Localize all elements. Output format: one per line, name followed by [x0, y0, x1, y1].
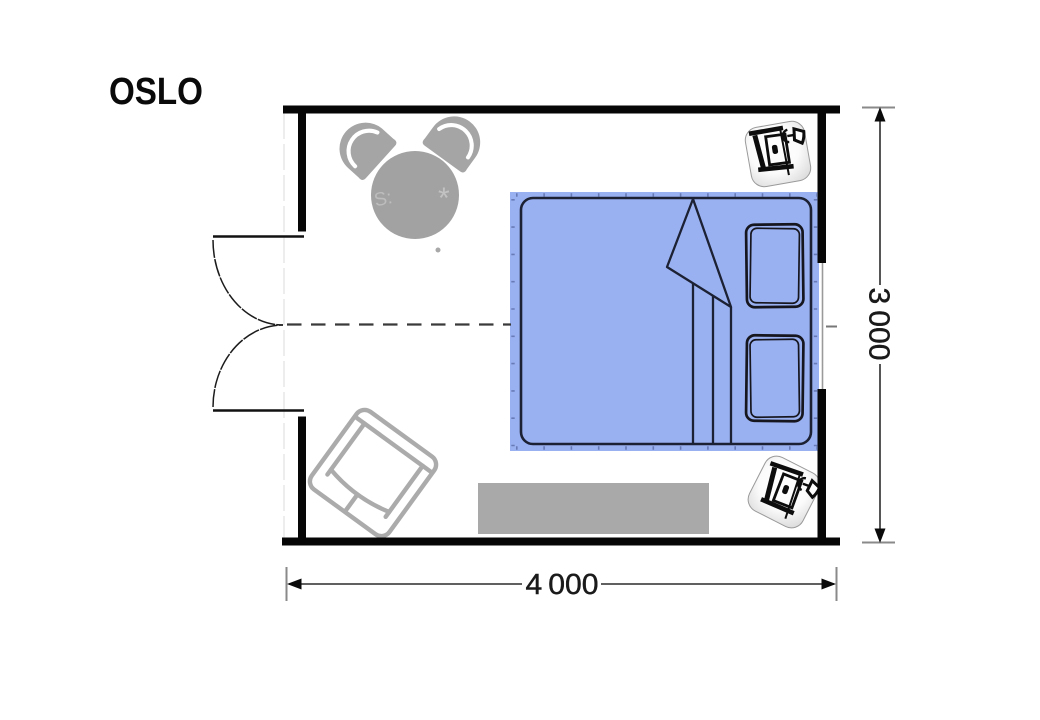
svg-text:3 000: 3 000 [863, 288, 895, 361]
svg-text:4 000: 4 000 [526, 569, 599, 601]
svg-text:*: * [438, 182, 450, 215]
svg-text:OSLO: OSLO [109, 71, 203, 113]
